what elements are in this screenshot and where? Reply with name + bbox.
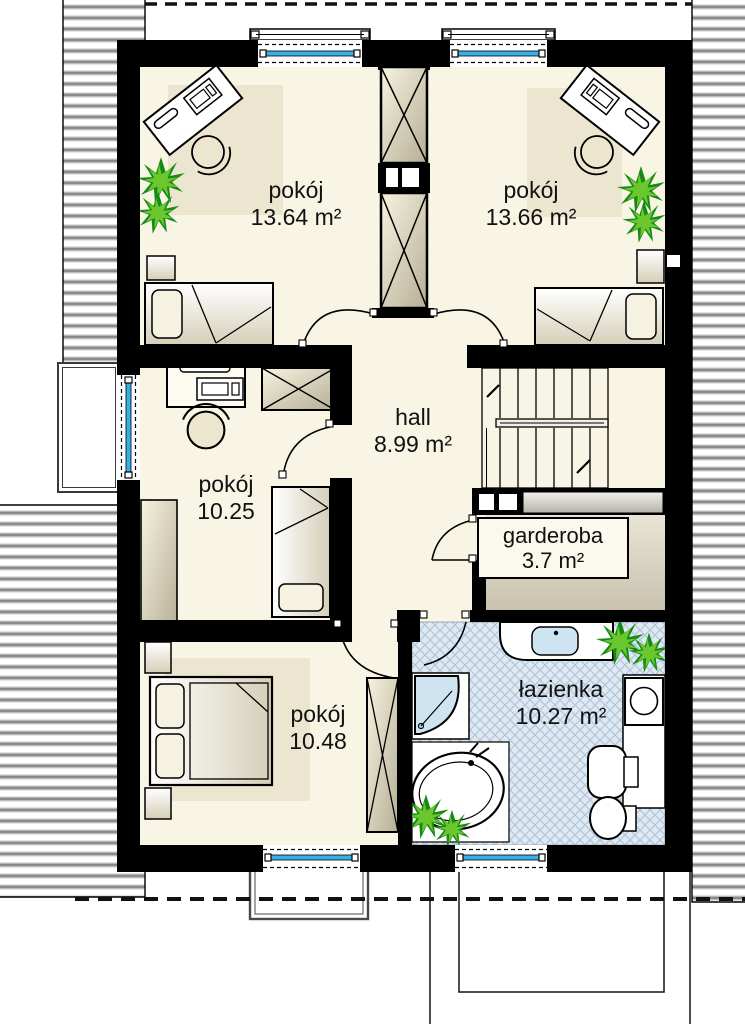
wardrobe-icon (262, 368, 335, 410)
room-area: 10.25 (197, 498, 255, 525)
floor-plan: pokój 13.64 m² pokój 13.66 m² pokój 10.2… (0, 0, 745, 1024)
room-area: 10.48 (289, 728, 347, 755)
room-label-hall: hall 8.99 m² (374, 404, 452, 458)
wardrobe-icon (141, 500, 177, 632)
balcony-left (58, 363, 120, 492)
room-name: łazienka (516, 676, 607, 703)
room-area: 3.7 m² (522, 548, 584, 573)
sink-icon (500, 622, 613, 660)
room-name: garderoba (503, 523, 603, 548)
room-area: 13.66 m² (486, 204, 577, 231)
room-label-lazienka: łazienka 10.27 m² (516, 676, 607, 730)
bed-icon (272, 487, 330, 617)
shower-icon (412, 673, 469, 739)
room-label-pokoj-10-25: pokój 10.25 (197, 471, 255, 525)
room-name: pokój (486, 177, 577, 204)
room-area: 13.64 m² (251, 204, 342, 231)
room-name: hall (374, 404, 452, 431)
garderoba-shelf (523, 492, 663, 513)
terrace-outline (430, 870, 690, 1024)
room-name: pokój (289, 701, 347, 728)
room-label-pokoj-13-64: pokój 13.64 m² (251, 177, 342, 231)
washing-machine-icon (623, 675, 665, 808)
room-label-pokoj-13-66: pokój 13.66 m² (486, 177, 577, 231)
room-label-pokoj-10-48: pokój 10.48 (289, 701, 347, 755)
room-area: 8.99 m² (374, 431, 452, 458)
room-name: pokój (251, 177, 342, 204)
wardrobe-icon (367, 678, 398, 832)
floor-plan-drawing (0, 0, 745, 1024)
room-label-garderoba: garderoba 3.7 m² (477, 517, 629, 579)
room-name: pokój (197, 471, 255, 498)
room-area: 10.27 m² (516, 703, 607, 730)
